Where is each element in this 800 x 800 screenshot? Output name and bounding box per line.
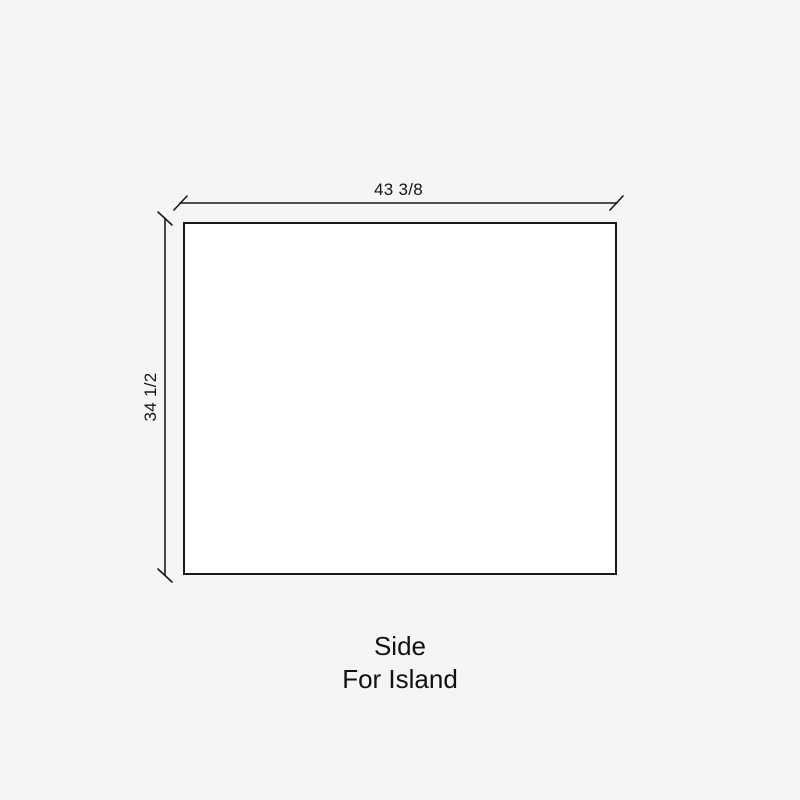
height-dimension-label: 34 1/2 [141, 372, 161, 421]
caption-title: Side [0, 630, 800, 663]
width-dimension-label: 43 3/8 [180, 180, 617, 200]
caption-subtitle: For Island [0, 663, 800, 696]
panel-rectangle [184, 223, 616, 574]
caption: Side For Island [0, 630, 800, 696]
drawing-canvas: 43 3/8 34 1/2 Side For Island [0, 0, 800, 800]
